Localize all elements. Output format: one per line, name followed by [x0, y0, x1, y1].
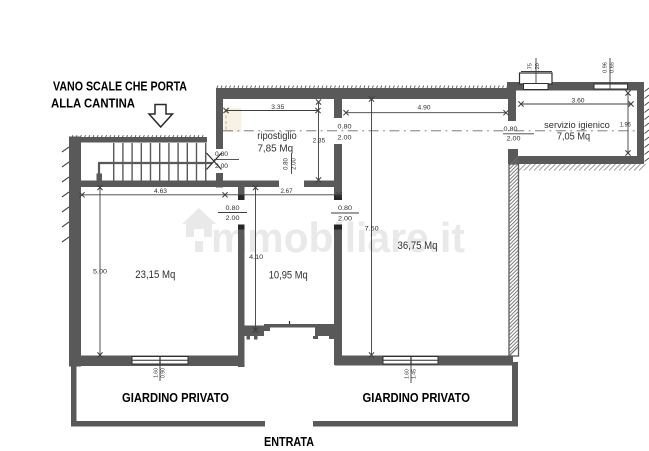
svg-text:0.96: 0.96: [603, 62, 609, 73]
svg-text:1.96: 1.96: [620, 121, 631, 128]
svg-text:1.60: 1.60: [405, 369, 411, 379]
svg-text:2.00: 2.00: [338, 216, 352, 223]
svg-text:2.00: 2.00: [215, 163, 228, 170]
svg-text:7.50: 7.50: [365, 225, 379, 232]
svg-text:0.80: 0.80: [226, 205, 240, 212]
svg-text:GIARDINO PRIVATO: GIARDINO PRIVATO: [122, 391, 229, 405]
svg-text:0.65: 0.65: [610, 62, 616, 73]
svg-text:2.00: 2.00: [226, 215, 240, 222]
svg-text:2.67: 2.67: [281, 188, 293, 195]
svg-text:servizio igienico: servizio igienico: [544, 120, 610, 130]
svg-text:4.10: 4.10: [249, 254, 263, 261]
svg-text:.75: .75: [528, 63, 534, 71]
svg-text:1.45: 1.45: [412, 369, 418, 379]
svg-text:ENTRATA: ENTRATA: [264, 435, 314, 449]
svg-text:.20: .20: [535, 63, 541, 71]
svg-text:2.00: 2.00: [507, 136, 521, 143]
svg-text:23,15 Mq: 23,15 Mq: [135, 269, 175, 281]
svg-text:ALLA CANTINA: ALLA CANTINA: [51, 96, 136, 111]
svg-text:GIARDINO PRIVATO: GIARDINO PRIVATO: [362, 391, 470, 405]
svg-text:0.80: 0.80: [215, 151, 228, 158]
svg-text:0.80: 0.80: [338, 124, 352, 131]
svg-text:3.60: 3.60: [572, 98, 585, 105]
svg-text:0.80: 0.80: [284, 158, 290, 170]
svg-text:7,85 Mq: 7,85 Mq: [257, 143, 293, 155]
svg-text:ripostiglio: ripostiglio: [257, 130, 297, 142]
svg-text:3.35: 3.35: [271, 104, 284, 111]
svg-text:0.90: 0.90: [161, 368, 167, 378]
svg-text:1.60: 1.60: [154, 368, 160, 378]
svg-text:4.63: 4.63: [154, 188, 167, 195]
svg-text:2.00: 2.00: [338, 135, 352, 142]
svg-text:36,75 Mq: 36,75 Mq: [398, 240, 438, 252]
svg-text:2.00: 2.00: [292, 158, 298, 170]
svg-text:10,95 Mq: 10,95 Mq: [269, 270, 308, 282]
svg-text:5.00: 5.00: [93, 269, 107, 276]
svg-text:2.35: 2.35: [313, 137, 326, 144]
svg-text:VANO SCALE CHE PORTA: VANO SCALE CHE PORTA: [53, 79, 187, 94]
svg-text:4.90: 4.90: [418, 105, 431, 112]
svg-text:0.80: 0.80: [504, 126, 518, 133]
svg-text:7,05 Mq: 7,05 Mq: [557, 132, 590, 143]
svg-text:0.80: 0.80: [338, 205, 352, 212]
